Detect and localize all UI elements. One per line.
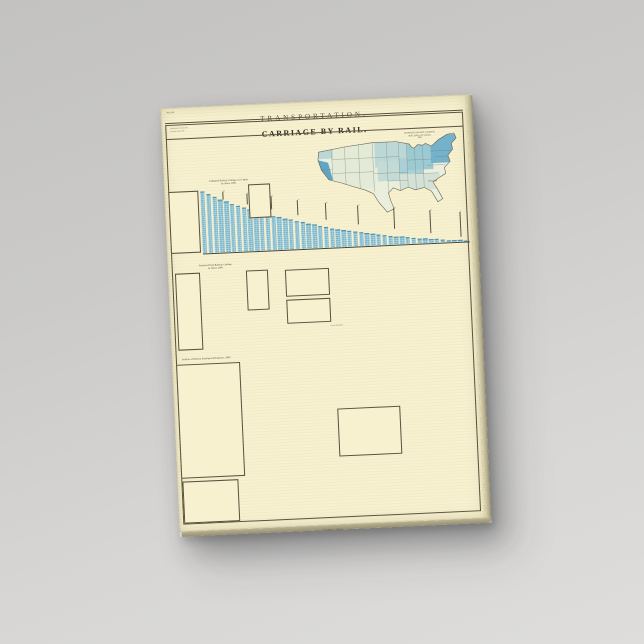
bar <box>347 231 352 247</box>
chart-a-bars: 50454034282216105 <box>200 180 470 254</box>
marker-pin <box>459 212 461 237</box>
bar <box>435 239 440 243</box>
chart-c-table <box>176 362 245 479</box>
bar <box>300 222 306 249</box>
liabilities-bars <box>400 404 478 445</box>
bar <box>335 229 340 247</box>
bar <box>341 230 346 247</box>
bar <box>440 240 445 243</box>
territories-table-2 <box>246 270 270 311</box>
marker-pin <box>297 200 298 215</box>
bar <box>411 238 416 244</box>
bar <box>417 238 422 244</box>
bar <box>330 228 335 248</box>
bar <box>371 234 376 246</box>
marker-pin-label: 40 <box>271 195 273 197</box>
marker-pin <box>246 193 247 204</box>
marker-pin <box>325 203 326 220</box>
bar <box>464 240 468 241</box>
bar <box>312 224 317 248</box>
marker-pin-label: 5 <box>460 210 461 212</box>
marker-pin <box>393 208 394 229</box>
marker-pin <box>429 210 431 233</box>
bar <box>423 239 428 244</box>
bar <box>359 232 364 246</box>
profit-stock-table <box>286 298 331 324</box>
bar <box>283 218 289 250</box>
bar <box>452 240 456 242</box>
marker-pin-label: 16 <box>394 206 396 208</box>
marker-pin-label: 34 <box>298 199 300 201</box>
bar <box>376 234 381 245</box>
bar <box>365 233 370 246</box>
bar <box>400 237 405 245</box>
bar <box>446 240 450 243</box>
bar <box>382 235 387 245</box>
marker-pin-label: 28 <box>326 201 328 203</box>
bar <box>324 227 329 248</box>
bar <box>388 236 393 245</box>
liabilities-table <box>337 406 402 457</box>
marker-pin-label: 50 <box>223 190 225 192</box>
bar <box>277 217 283 250</box>
bar <box>294 221 300 250</box>
territories-table <box>248 183 272 218</box>
product-mockup-scene: Plate 142. TRANSPORTATION. Based upon th… <box>0 0 644 644</box>
chart-d-table <box>182 479 240 523</box>
rolling-stock-table <box>285 268 330 297</box>
marker-pin <box>222 192 223 200</box>
chart-a-table <box>168 191 201 254</box>
bar <box>353 231 358 246</box>
chart-b-table <box>175 273 203 351</box>
marker-pin-label: 22 <box>358 204 360 206</box>
marker-pin <box>357 205 358 224</box>
canvas-print-mockup: Plate 142. TRANSPORTATION. Based upon th… <box>160 94 491 537</box>
bar <box>289 219 295 249</box>
bar <box>394 236 399 245</box>
marker-pin-label: 10 <box>430 209 432 211</box>
bar <box>458 240 462 242</box>
bar <box>406 237 411 244</box>
bar <box>429 239 434 243</box>
bar <box>318 226 323 249</box>
atlas-plate: Plate 142. TRANSPORTATION. Based upon th… <box>160 94 485 531</box>
bar <box>306 223 312 249</box>
imprint: JULIUS BIEN & CO. LITH. N.Y. <box>322 528 343 531</box>
